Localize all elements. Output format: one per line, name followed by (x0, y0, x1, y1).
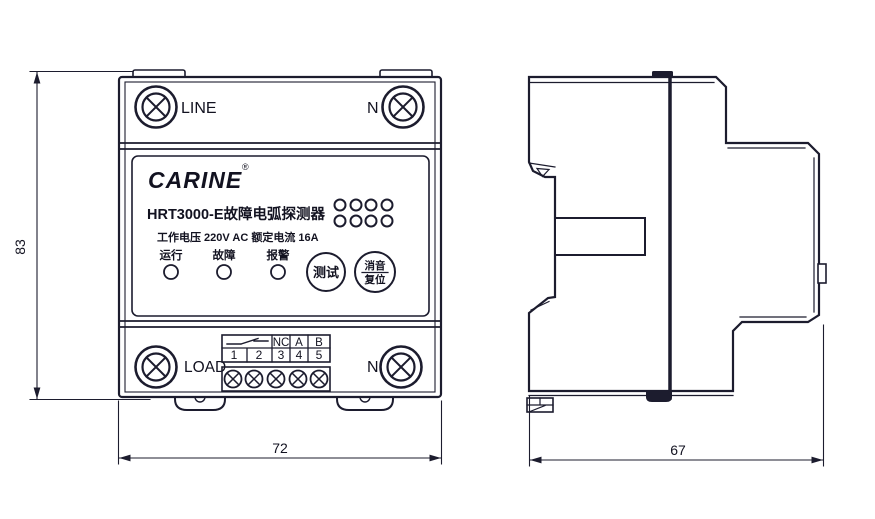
front-view: 83 LINE N CARINE ® HRT3000-E故障电弧探测器 工作电压… (12, 70, 442, 464)
arrow-down-icon (34, 388, 41, 400)
din-rail-slot (555, 218, 645, 255)
indicator-alarm-label: 报警 (267, 248, 290, 262)
spec-text: 工作电压 220V AC 额定电流 16A (157, 230, 319, 244)
trademark-symbol: ® (242, 162, 249, 172)
technical-drawing-canvas: 83 LINE N CARINE ® HRT3000-E故障电弧探测器 工作电压… (0, 0, 875, 519)
indicator-run-label: 运行 (160, 248, 183, 262)
load-terminal-label: LOAD (184, 359, 226, 376)
side-bump (818, 264, 826, 283)
bottom-seal-tab (646, 391, 672, 402)
arrow-right-icon (812, 457, 824, 464)
line-terminal-label: LINE (181, 100, 217, 117)
terminal-number-4: 4 (296, 348, 303, 362)
mute-button-label: 消音 (365, 259, 386, 272)
din-clip-release (527, 398, 553, 412)
width-dimension-label: 72 (272, 440, 288, 456)
terminal-number-3: 3 (278, 348, 285, 362)
arrow-left-icon (530, 457, 542, 464)
arrow-left-icon (119, 455, 131, 462)
side-view: 67 (527, 71, 826, 466)
depth-dimension-label: 67 (670, 442, 686, 458)
terminal-number-5: 5 (316, 348, 323, 362)
bottom-clip-right (337, 397, 393, 410)
neutral-terminal-label-bottom: N (367, 359, 379, 376)
arrow-up-icon (34, 72, 41, 84)
test-button-label: 测试 (313, 265, 339, 280)
terminal-number-2: 2 (256, 348, 263, 362)
neutral-terminal-screw-bottom (381, 347, 422, 388)
indicator-fault-label: 故障 (213, 248, 236, 262)
bottom-clip-left (175, 397, 225, 410)
drawing-svg: 83 LINE N CARINE ® HRT3000-E故障电弧探测器 工作电压… (0, 0, 875, 519)
model-title: HRT3000-E故障电弧探测器 (147, 205, 326, 223)
width-dimension: 72 (119, 401, 442, 464)
terminal-number-1: 1 (231, 348, 238, 362)
brand-logo: CARINE (148, 167, 242, 193)
neutral-terminal-label-top: N (367, 100, 379, 117)
neutral-terminal-screw-top (383, 87, 424, 128)
arrow-right-icon (430, 455, 442, 462)
height-dimension-label: 83 (12, 239, 28, 255)
top-seal-tab (652, 71, 673, 78)
line-terminal-screw (136, 87, 177, 128)
load-terminal-screw (136, 347, 177, 388)
reset-button-label: 复位 (364, 273, 386, 286)
